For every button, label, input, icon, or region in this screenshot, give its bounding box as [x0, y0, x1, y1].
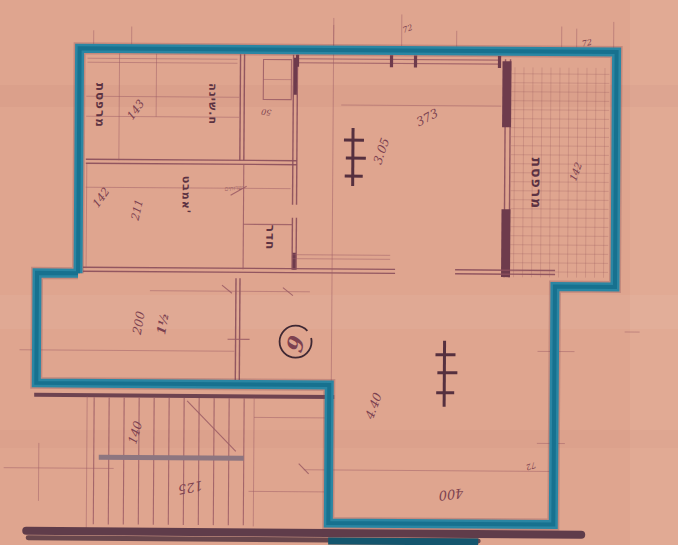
balcony-pillar-top	[502, 61, 511, 127]
stair-landing-edge	[99, 457, 244, 458]
balcony-label: מרפסת	[528, 157, 544, 209]
balcony-pillar-bottom	[501, 209, 510, 277]
scanned-floorplan-page: 140 125 מרפסת 142	[0, 0, 678, 545]
balcony-hatch	[510, 67, 609, 278]
bedroom-label: ח.שינה	[206, 83, 219, 125]
bathroom-label: אמבט'	[179, 176, 192, 215]
dim-50: 50	[261, 107, 273, 117]
left-strip-label: מרפסת	[93, 83, 107, 128]
balcony: מרפסת 142	[501, 59, 610, 278]
inner-room-label: חדר	[263, 225, 277, 251]
floorplan-drawing: 140 125 מרפסת 142	[0, 0, 678, 545]
